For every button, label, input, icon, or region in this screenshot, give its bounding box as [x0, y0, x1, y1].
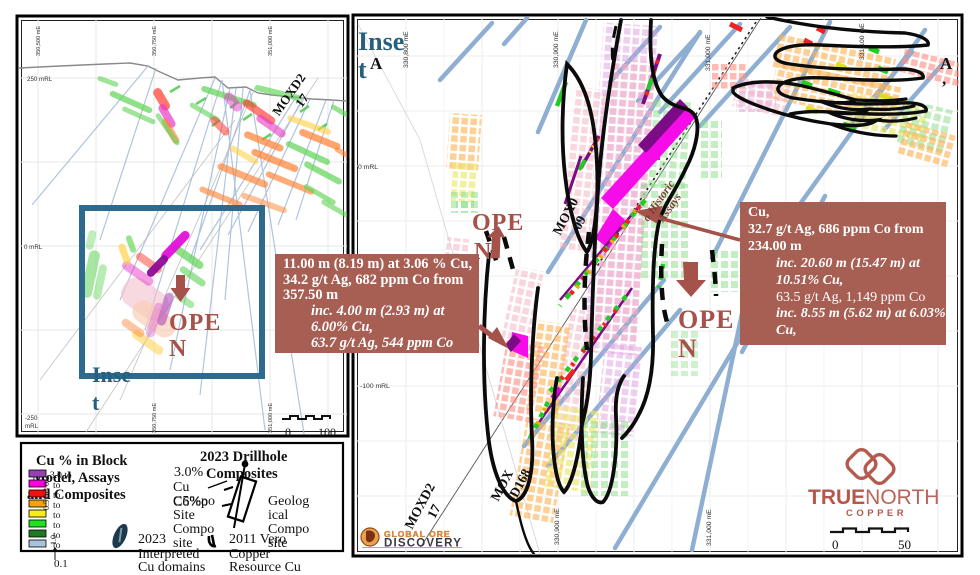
svg-text:350,750 mE: 350,750 mE	[152, 403, 158, 433]
svg-text:3.0 to: 3.0 to	[50, 471, 72, 481]
svg-text:330,900 mE: 330,900 mE	[554, 508, 561, 545]
svg-text:0: 0	[285, 425, 291, 439]
svg-text:100: 100	[318, 425, 336, 439]
svg-text:t: t	[92, 390, 100, 415]
svg-text:to: to	[53, 501, 61, 511]
svg-text:Cu: Cu	[173, 480, 189, 495]
svg-text:to: to	[53, 511, 61, 521]
svg-text:TRUENORTH: TRUENORTH	[808, 486, 939, 509]
svg-text:t: t	[358, 55, 367, 84]
svg-text:N: N	[169, 336, 187, 362]
svg-text:Geolog: Geolog	[268, 494, 309, 509]
svg-text:,: ,	[942, 69, 946, 88]
svg-text:2023: 2023	[138, 532, 166, 547]
svg-text:331,000 mE: 331,000 mE	[705, 34, 712, 71]
svg-text:Compo: Compo	[173, 522, 214, 537]
svg-text:to: to	[53, 521, 61, 531]
svg-text:351,000 mE: 351,000 mE	[268, 403, 274, 433]
svg-text:Site: Site	[173, 508, 195, 523]
svg-text:Inse: Inse	[358, 27, 404, 56]
svg-text:Resource Cu: Resource Cu	[229, 560, 301, 575]
svg-text:330,900 mE: 330,900 mE	[553, 31, 560, 68]
svg-text:OPE: OPE	[678, 305, 734, 334]
svg-text:250 mRL: 250 mRL	[27, 76, 53, 83]
svg-text:0.5 0.3 0.2: 0.5 0.3 0.2	[42, 476, 51, 510]
svg-text:0 mRL: 0 mRL	[358, 164, 378, 171]
svg-text:mRL: mRL	[25, 423, 39, 430]
svg-text:0: 0	[832, 537, 839, 552]
svg-text:Cu domains: Cu domains	[138, 560, 205, 575]
svg-text:-100 mRL: -100 mRL	[360, 383, 390, 390]
svg-text:50: 50	[898, 537, 911, 552]
svg-text:331,100 mE: 331,100 mE	[859, 23, 866, 60]
svg-text:to: to	[53, 481, 61, 491]
svg-text:330,800 mE: 330,800 mE	[403, 31, 410, 68]
svg-text:Inse: Inse	[92, 362, 131, 387]
svg-text:331,000 mE: 331,000 mE	[706, 509, 713, 546]
svg-text:ical: ical	[268, 508, 288, 523]
svg-text:0 mRL: 0 mRL	[24, 244, 43, 251]
svg-text:OPE: OPE	[169, 310, 221, 336]
svg-text:A: A	[370, 54, 383, 73]
svg-text:350,500 mE: 350,500 mE	[36, 26, 42, 56]
svg-text:2011 Vero: 2011 Vero	[229, 532, 286, 547]
svg-text:N: N	[678, 334, 697, 363]
svg-text:0.1: 0.1	[54, 558, 68, 570]
svg-text:350,750 mE: 350,750 mE	[152, 26, 158, 56]
svg-text:to: to	[53, 491, 61, 501]
svg-text:3.0%: 3.0%	[174, 465, 204, 480]
svg-text:351,000 mE: 351,000 mE	[268, 26, 274, 56]
svg-text:1.0: 1.0	[49, 535, 58, 545]
svg-text:-250: -250	[25, 415, 38, 422]
svg-text:Cu % in Block: Cu % in Block	[36, 453, 128, 469]
svg-text:COPPER: COPPER	[846, 508, 907, 519]
